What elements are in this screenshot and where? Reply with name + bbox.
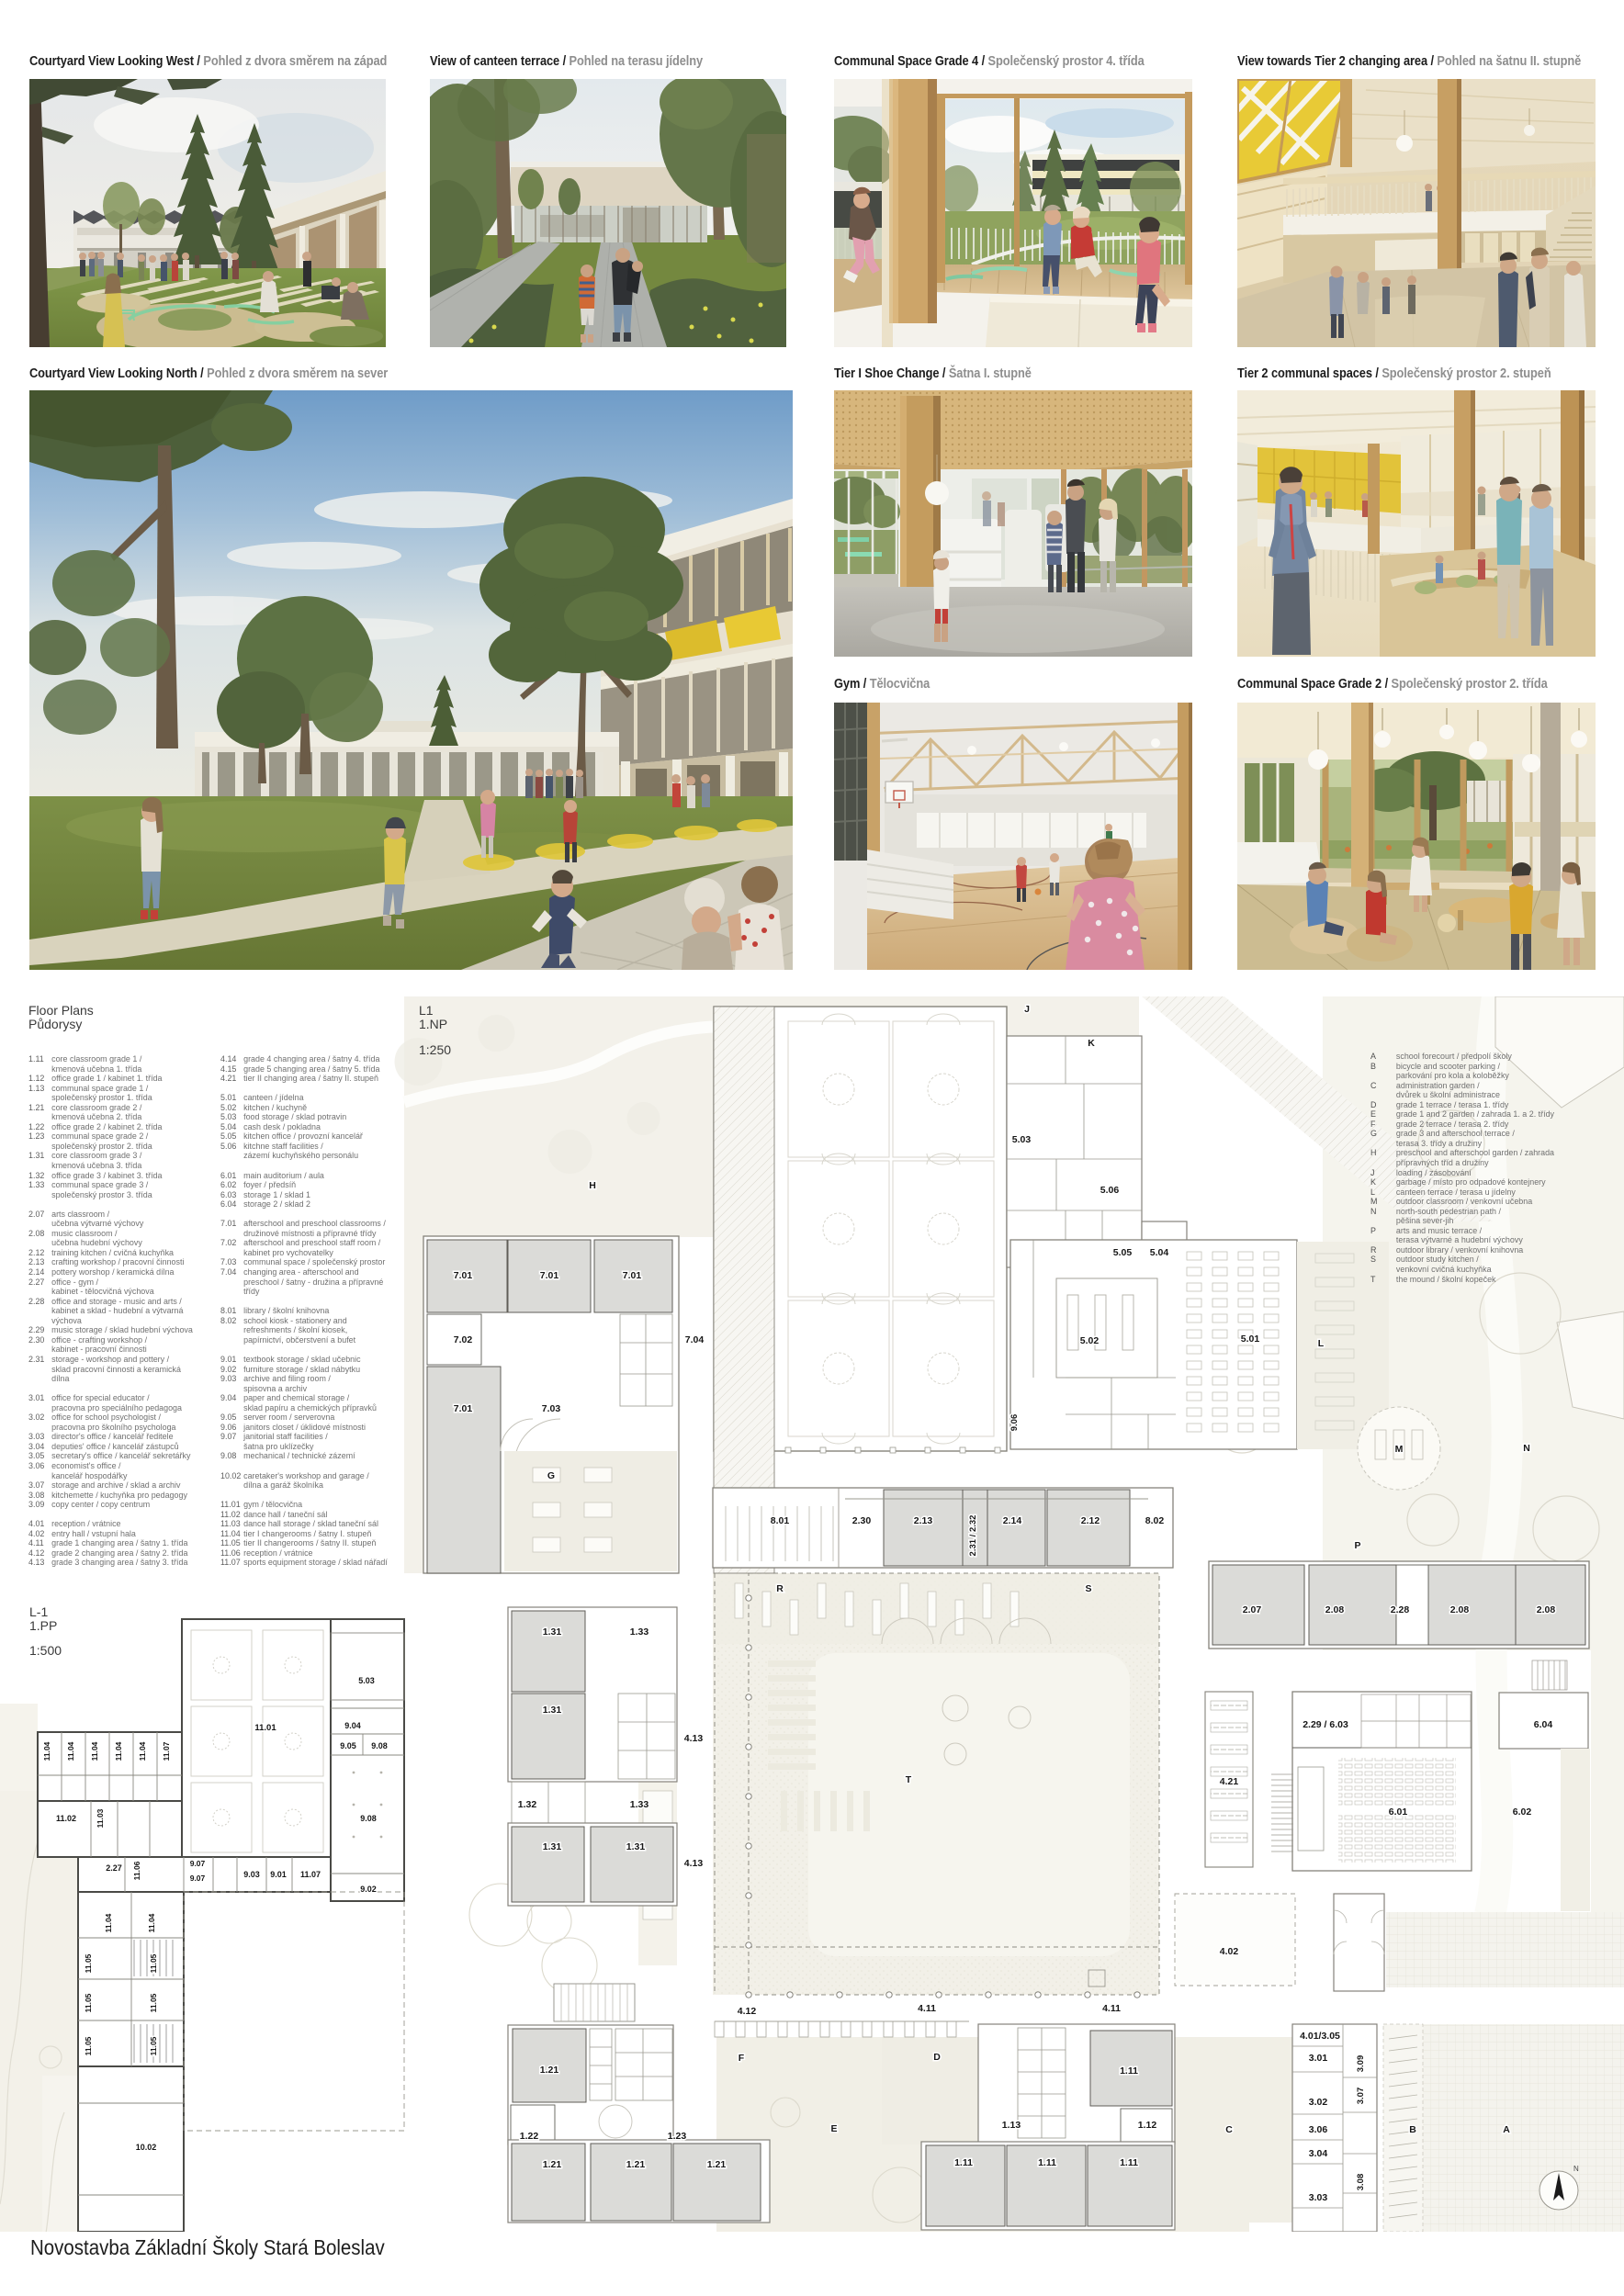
- svg-text:11.02: 11.02: [56, 1814, 76, 1823]
- svg-text:7.01: 7.01: [454, 1403, 473, 1414]
- svg-text:3.06: 3.06: [1309, 2124, 1328, 2135]
- svg-text:1.31: 1.31: [543, 1841, 562, 1852]
- svg-text:1.33: 1.33: [630, 1626, 649, 1638]
- svg-text:11.07: 11.07: [162, 1741, 171, 1761]
- svg-text:11.04: 11.04: [104, 1913, 113, 1932]
- svg-text:D: D: [933, 2052, 941, 2063]
- svg-text:9.03: 9.03: [243, 1870, 260, 1879]
- svg-text:6.04: 6.04: [1534, 1719, 1553, 1730]
- svg-text:1.12: 1.12: [1138, 2120, 1157, 2131]
- svg-text:2.28: 2.28: [1391, 1604, 1410, 1615]
- svg-text:4.21: 4.21: [1220, 1776, 1239, 1787]
- svg-text:1.11: 1.11: [1120, 2157, 1138, 2168]
- svg-text:11.05: 11.05: [149, 1993, 158, 2012]
- svg-text:F: F: [739, 2053, 745, 2064]
- svg-text:11.05: 11.05: [84, 1953, 93, 1973]
- svg-text:4.11: 4.11: [1102, 2003, 1121, 2014]
- svg-text:11.05: 11.05: [149, 1953, 158, 1973]
- svg-text:11.04: 11.04: [66, 1741, 75, 1761]
- svg-text:6.02: 6.02: [1513, 1806, 1532, 1818]
- svg-text:7.01: 7.01: [454, 1270, 473, 1281]
- svg-text:J: J: [1024, 1004, 1030, 1015]
- svg-text:5.04: 5.04: [1150, 1247, 1169, 1258]
- svg-text:11.04: 11.04: [90, 1741, 99, 1761]
- svg-text:3.02: 3.02: [1309, 2097, 1328, 2108]
- svg-text:5.01: 5.01: [1241, 1334, 1260, 1345]
- svg-text:G: G: [547, 1470, 555, 1481]
- svg-text:9.02: 9.02: [360, 1885, 377, 1894]
- svg-text:1.13: 1.13: [1002, 2120, 1021, 2131]
- svg-text:2.08: 2.08: [1537, 1604, 1556, 1615]
- svg-text:R: R: [776, 1583, 784, 1594]
- svg-text:11.05: 11.05: [84, 1993, 93, 2012]
- svg-text:5.02: 5.02: [1080, 1335, 1100, 1346]
- svg-text:2.29 / 6.03: 2.29 / 6.03: [1303, 1719, 1348, 1730]
- svg-text:1.22: 1.22: [520, 2131, 539, 2142]
- svg-text:11.04: 11.04: [138, 1741, 147, 1761]
- svg-text:4.01/3.05: 4.01/3.05: [1300, 2031, 1340, 2042]
- svg-text:11.05: 11.05: [149, 2036, 158, 2055]
- svg-text:9.01: 9.01: [270, 1870, 287, 1879]
- svg-text:H: H: [589, 1180, 596, 1191]
- svg-text:4.11: 4.11: [918, 2003, 936, 2014]
- svg-text:11.04: 11.04: [147, 1913, 156, 1932]
- svg-text:A: A: [1503, 2124, 1510, 2135]
- svg-text:1.31: 1.31: [543, 1705, 562, 1716]
- svg-text:11.06: 11.06: [132, 1861, 141, 1880]
- svg-text:11.03: 11.03: [96, 1808, 105, 1828]
- svg-text:9.08: 9.08: [371, 1741, 388, 1750]
- svg-text:7.03: 7.03: [542, 1403, 561, 1414]
- svg-text:1.31: 1.31: [626, 1841, 646, 1852]
- svg-text:3.04: 3.04: [1309, 2148, 1328, 2159]
- svg-text:7.01: 7.01: [540, 1270, 559, 1281]
- svg-text:3.07: 3.07: [1356, 2088, 1366, 2105]
- svg-text:B: B: [1409, 2124, 1416, 2135]
- svg-text:T: T: [906, 1774, 912, 1785]
- svg-text:2.13: 2.13: [914, 1515, 933, 1526]
- svg-text:3.09: 3.09: [1356, 2055, 1366, 2073]
- svg-text:N: N: [1573, 2165, 1579, 2173]
- svg-text:P: P: [1354, 1540, 1360, 1551]
- svg-text:9.05: 9.05: [340, 1741, 356, 1750]
- svg-text:1.21: 1.21: [626, 2159, 646, 2170]
- svg-text:9.08: 9.08: [360, 1814, 377, 1823]
- svg-text:11.04: 11.04: [114, 1741, 123, 1761]
- svg-text:2.08: 2.08: [1450, 1604, 1470, 1615]
- svg-text:9.07: 9.07: [190, 1874, 206, 1883]
- svg-text:S: S: [1085, 1583, 1091, 1594]
- svg-text:1.21: 1.21: [707, 2159, 727, 2170]
- svg-text:2.30: 2.30: [852, 1515, 872, 1526]
- svg-text:11.04: 11.04: [42, 1741, 51, 1761]
- svg-text:6.01: 6.01: [1389, 1806, 1408, 1818]
- svg-text:2.27: 2.27: [106, 1863, 122, 1873]
- svg-text:3.08: 3.08: [1356, 2174, 1366, 2191]
- svg-text:1.21: 1.21: [540, 2065, 559, 2076]
- svg-text:11.07: 11.07: [300, 1870, 321, 1879]
- svg-text:9.06: 9.06: [1009, 1414, 1020, 1432]
- svg-text:10.02: 10.02: [136, 2143, 157, 2152]
- svg-text:3.01: 3.01: [1309, 2053, 1328, 2064]
- svg-text:2.07: 2.07: [1243, 1604, 1262, 1615]
- svg-text:9.07: 9.07: [190, 1859, 206, 1868]
- svg-text:11.01: 11.01: [254, 1723, 276, 1733]
- svg-text:5.05: 5.05: [1113, 1247, 1133, 1258]
- svg-text:1.21: 1.21: [543, 2159, 562, 2170]
- svg-text:1.33: 1.33: [630, 1799, 649, 1810]
- svg-text:2.12: 2.12: [1081, 1515, 1100, 1526]
- svg-text:5.03: 5.03: [358, 1676, 375, 1685]
- svg-text:2.08: 2.08: [1325, 1604, 1345, 1615]
- svg-text:5.03: 5.03: [1012, 1134, 1032, 1145]
- svg-text:11.05: 11.05: [84, 2036, 93, 2055]
- svg-text:L: L: [1318, 1338, 1325, 1349]
- svg-text:E: E: [830, 2123, 837, 2134]
- svg-text:4.02: 4.02: [1220, 1946, 1239, 1957]
- svg-text:9.04: 9.04: [344, 1721, 361, 1730]
- svg-text:4.13: 4.13: [684, 1858, 704, 1869]
- svg-text:8.02: 8.02: [1145, 1515, 1165, 1526]
- svg-text:7.02: 7.02: [454, 1334, 473, 1345]
- svg-text:8.01: 8.01: [771, 1515, 790, 1526]
- svg-text:3.03: 3.03: [1309, 2192, 1328, 2203]
- svg-text:2.14: 2.14: [1003, 1515, 1022, 1526]
- svg-text:1.11: 1.11: [1038, 2157, 1056, 2168]
- svg-text:1.11: 1.11: [954, 2157, 973, 2168]
- svg-text:7.01: 7.01: [623, 1270, 642, 1281]
- svg-text:M: M: [1395, 1444, 1404, 1455]
- svg-text:1.31: 1.31: [543, 1626, 562, 1638]
- svg-text:N: N: [1523, 1443, 1530, 1454]
- svg-text:K: K: [1088, 1038, 1095, 1049]
- svg-text:5.06: 5.06: [1100, 1185, 1120, 1196]
- svg-text:C: C: [1225, 2124, 1233, 2135]
- svg-text:1.23: 1.23: [668, 2131, 687, 2142]
- svg-text:4.13: 4.13: [684, 1733, 704, 1744]
- svg-text:2.31 / 2.32: 2.31 / 2.32: [968, 1515, 978, 1557]
- svg-text:1.32: 1.32: [518, 1799, 537, 1810]
- svg-text:4.12: 4.12: [738, 2006, 757, 2017]
- svg-text:7.04: 7.04: [685, 1334, 705, 1345]
- svg-text:1.11: 1.11: [1120, 2065, 1138, 2077]
